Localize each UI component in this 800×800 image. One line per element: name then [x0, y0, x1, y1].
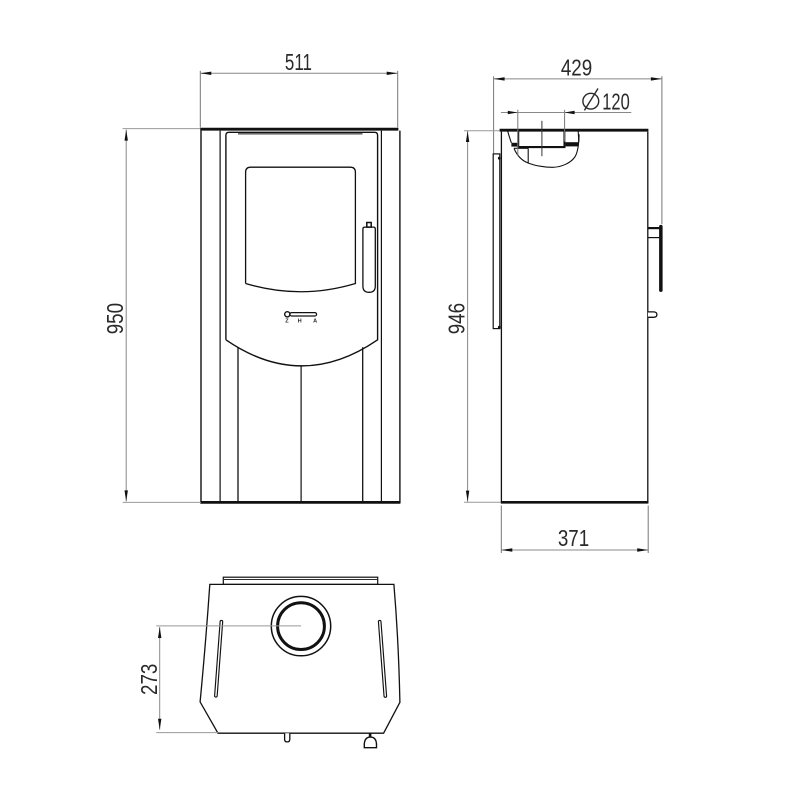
- svg-text:950: 950: [102, 303, 129, 334]
- svg-text:A: A: [313, 319, 317, 325]
- svg-text:946: 946: [443, 303, 470, 334]
- svg-text:273: 273: [136, 664, 163, 695]
- svg-text:511: 511: [285, 49, 312, 75]
- svg-text:429: 429: [561, 55, 592, 82]
- svg-text:Z: Z: [285, 319, 289, 325]
- svg-text:371: 371: [558, 525, 589, 552]
- svg-text:H: H: [298, 319, 302, 325]
- svg-text:120: 120: [602, 90, 629, 115]
